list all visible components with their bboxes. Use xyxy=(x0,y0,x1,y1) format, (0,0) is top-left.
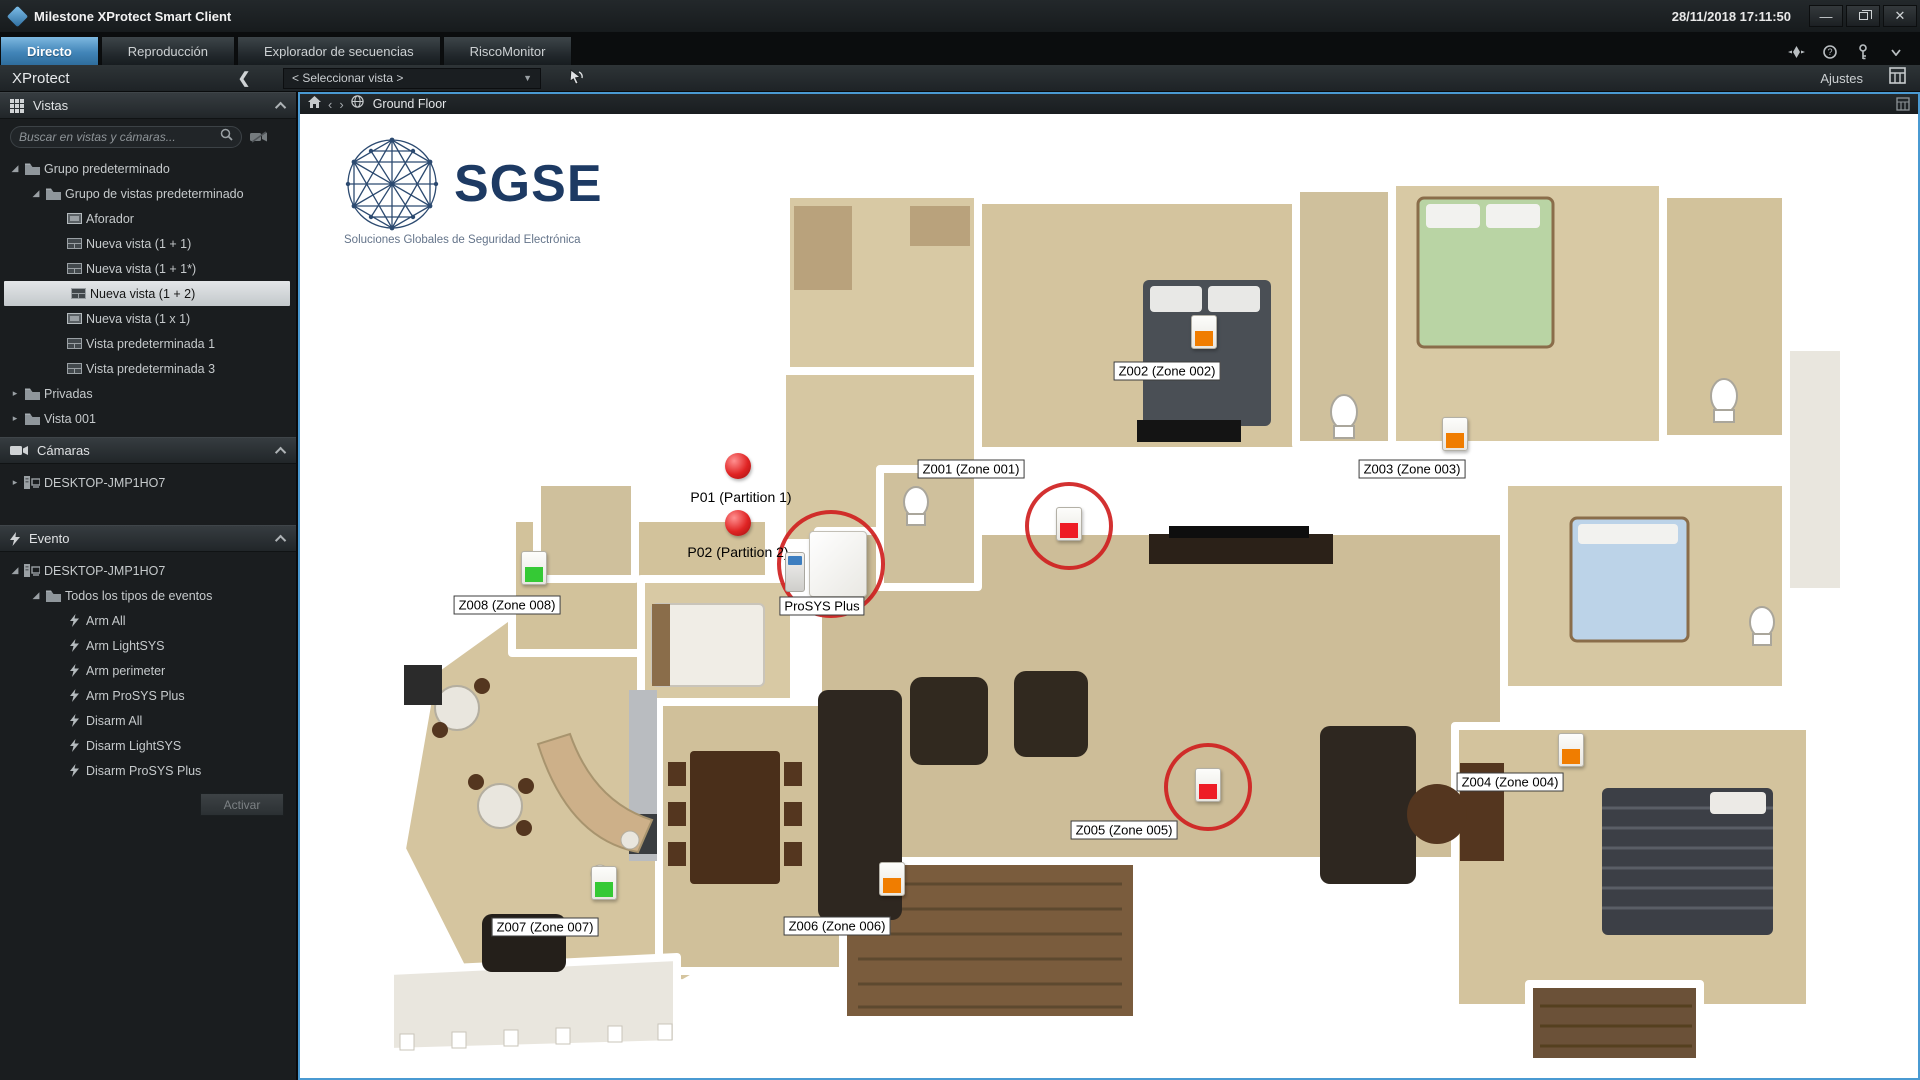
map-view-panel[interactable]: ‹ › Ground Floor xyxy=(298,92,1920,1080)
bolt-icon xyxy=(64,614,84,627)
tree-item-label: Privadas xyxy=(44,387,93,401)
tab-reproducción[interactable]: Reproducción xyxy=(101,36,235,65)
tree-item-label: Arm ProSYS Plus xyxy=(86,689,185,703)
key-icon[interactable] xyxy=(1854,45,1871,59)
tree-item-aforador[interactable]: Aforador xyxy=(0,206,296,231)
panel-title-camaras: Cámaras xyxy=(37,443,90,458)
sgse-sphere-icon xyxy=(344,136,440,232)
panel-header-evento[interactable]: Evento xyxy=(0,525,296,552)
collapse-panel-icon[interactable] xyxy=(275,534,286,545)
camaras-tree: ▸DESKTOP-JMP1HO7 xyxy=(0,464,296,495)
tree-item-privadas[interactable]: ▸Privadas xyxy=(0,381,296,406)
zone-label-z005: Z005 (Zone 005) xyxy=(1071,821,1178,840)
zone-sensor-z002[interactable] xyxy=(1191,315,1217,349)
app-title: Milestone XProtect Smart Client xyxy=(34,9,231,24)
milestone-logo-icon xyxy=(7,5,28,26)
settings-label[interactable]: Ajustes xyxy=(1820,71,1863,86)
prosys-keypad-device[interactable] xyxy=(785,552,805,592)
zone-label-z003: Z003 (Zone 003) xyxy=(1359,460,1466,479)
view-selector-dropdown[interactable]: < Seleccionar vista > ▼ xyxy=(283,68,541,89)
tree-item-nueva-vista-1-1-[interactable]: Nueva vista (1 + 1*) xyxy=(0,256,296,281)
tree-item-label: Disarm All xyxy=(86,714,142,728)
tree-item-arm-lightsys[interactable]: Arm LightSYS xyxy=(0,633,296,658)
view-icon xyxy=(64,363,84,374)
partition-label-p01: P01 (Partition 1) xyxy=(690,489,791,505)
title-bar: Milestone XProtect Smart Client 28/11/20… xyxy=(0,0,1920,32)
sgse-logo: SGSE Soluciones Globales de Seguridad El… xyxy=(344,136,644,246)
event-bolt-icon xyxy=(10,532,20,546)
setup-cursor-icon[interactable] xyxy=(567,69,585,87)
bolt-icon xyxy=(64,639,84,652)
map-title: Ground Floor xyxy=(373,97,447,111)
tree-item-label: Arm perimeter xyxy=(86,664,165,678)
tree-item-desktop-jmp1ho7[interactable]: ◢DESKTOP-JMP1HO7 xyxy=(0,558,296,583)
tree-item-label: Disarm ProSYS Plus xyxy=(86,764,201,778)
tree-item-label: Grupo de vistas predeterminado xyxy=(65,187,244,201)
sidebar: Vistas ◢Grupo predeterminado◢Grupo de vi… xyxy=(0,92,298,1080)
bolt-icon xyxy=(64,664,84,677)
panel-header-vistas[interactable]: Vistas xyxy=(0,92,296,119)
view-icon xyxy=(64,338,84,349)
tree-item-vista-predeterminada-1[interactable]: Vista predeterminada 1 xyxy=(0,331,296,356)
panel-title-evento: Evento xyxy=(29,531,69,546)
bolt-icon xyxy=(64,764,84,777)
tree-item-label: Vista predeterminada 1 xyxy=(86,337,215,351)
partition-dot-p02[interactable] xyxy=(725,510,751,536)
expanded-arrow-icon[interactable]: ◢ xyxy=(29,590,43,601)
tree-item-label: Arm LightSYS xyxy=(86,639,165,653)
view-icon xyxy=(68,288,88,299)
tab-directo[interactable]: Directo xyxy=(0,36,99,65)
tree-item-label: Nueva vista (1 + 1*) xyxy=(86,262,196,276)
camera-icon xyxy=(10,445,28,456)
partition-label-p02: P02 (Partition 2) xyxy=(687,544,788,560)
server-icon xyxy=(22,564,42,577)
zone-label-z002: Z002 (Zone 002) xyxy=(1114,362,1221,381)
zone-label-z006: Z006 (Zone 006) xyxy=(784,917,891,936)
tree-item-vista-predeterminada-3[interactable]: Vista predeterminada 3 xyxy=(0,356,296,381)
prosys-panel-device[interactable] xyxy=(809,531,867,597)
close-button[interactable]: ✕ xyxy=(1883,5,1917,27)
restore-button[interactable] xyxy=(1846,5,1880,27)
zone-label-z001: Z001 (Zone 001) xyxy=(918,460,1025,479)
map-header-bar: ‹ › Ground Floor xyxy=(300,94,1918,114)
tree-item-label: Vista 001 xyxy=(44,412,96,426)
view1-icon xyxy=(64,213,84,224)
search-box[interactable] xyxy=(10,126,242,148)
tree-item-nueva-vista-1-x-1-[interactable]: Nueva vista (1 x 1) xyxy=(0,306,296,331)
tree-item-grupo-predeterminado[interactable]: ◢Grupo predeterminado xyxy=(0,156,296,181)
map-toolbar-toggle-icon[interactable] xyxy=(1896,97,1910,111)
collapsed-arrow-icon[interactable]: ▸ xyxy=(8,413,22,424)
panel-title-vistas: Vistas xyxy=(33,98,68,113)
tree-item-label: Aforador xyxy=(86,212,134,226)
tree-item-desktop-jmp1ho7[interactable]: ▸DESKTOP-JMP1HO7 xyxy=(0,470,296,495)
partition-dot-p01[interactable] xyxy=(725,453,751,479)
panel-header-camaras[interactable]: Cámaras xyxy=(0,437,296,464)
view1-icon xyxy=(64,313,84,324)
clock: 28/11/2018 17:11:50 xyxy=(1672,9,1791,24)
view-icon xyxy=(64,238,84,249)
tree-item-label: Nueva vista (1 x 1) xyxy=(86,312,190,326)
evento-tree: ◢DESKTOP-JMP1HO7◢Todos los tipos de even… xyxy=(0,552,296,783)
minimize-button[interactable]: — xyxy=(1809,5,1843,27)
search-input[interactable] xyxy=(19,130,220,144)
bolt-icon xyxy=(64,714,84,727)
zone-label-z008: Z008 (Zone 008) xyxy=(454,596,561,615)
collapsed-arrow-icon[interactable]: ▸ xyxy=(8,388,22,399)
tree-item-disarm-lightsys[interactable]: Disarm LightSYS xyxy=(0,733,296,758)
zone-sensor-z004[interactable] xyxy=(1558,733,1584,767)
status-icon[interactable] xyxy=(1788,45,1805,59)
folder-icon xyxy=(22,388,42,400)
server-icon xyxy=(22,476,42,489)
tab-explorador-de-secuencias[interactable]: Explorador de secuencias xyxy=(237,36,441,65)
tree-item-grupo-de-vistas-predeterminado[interactable]: ◢Grupo de vistas predeterminado xyxy=(0,181,296,206)
collapsed-arrow-icon[interactable]: ▸ xyxy=(8,477,22,488)
zone-sensor-z003[interactable] xyxy=(1442,417,1468,451)
tree-item-label: Grupo predeterminado xyxy=(44,162,170,176)
tree-item-label: Nueva vista (1 + 1) xyxy=(86,237,191,251)
chevron-down-icon[interactable] xyxy=(1887,45,1904,59)
view-icon xyxy=(64,263,84,274)
tree-item-label: Disarm LightSYS xyxy=(86,739,181,753)
zone-sensor-z001[interactable] xyxy=(1056,507,1082,541)
folder-icon xyxy=(43,590,63,602)
view-selector-value: < Seleccionar vista > xyxy=(292,71,403,85)
zone-sensor-z006[interactable] xyxy=(879,862,905,896)
zone-sensor-z008[interactable] xyxy=(521,551,547,585)
tree-item-label: Arm All xyxy=(86,614,126,628)
tree-item-disarm-prosys-plus[interactable]: Disarm ProSYS Plus xyxy=(0,758,296,783)
views-grid-icon xyxy=(10,99,24,113)
expanded-arrow-icon[interactable]: ◢ xyxy=(8,565,22,576)
tab-bar: DirectoReproducciónExplorador de secuenc… xyxy=(0,32,1920,65)
map-globe-icon xyxy=(351,95,364,113)
tab-riscomonitor[interactable]: RiscoMonitor xyxy=(443,36,573,65)
svg-text:?: ? xyxy=(1827,47,1832,57)
tree-item-label: Vista predeterminada 3 xyxy=(86,362,215,376)
toolbar: XProtect ❮ < Seleccionar vista > ▼ Ajust… xyxy=(0,65,1920,92)
vistas-tree: ◢Grupo predeterminado◢Grupo de vistas pr… xyxy=(0,156,296,431)
folder-icon xyxy=(22,163,42,175)
zone-sensor-z005[interactable] xyxy=(1195,768,1221,802)
activate-event-button[interactable]: Activar xyxy=(200,793,284,816)
xprotect-brand: XProtect xyxy=(12,70,227,87)
tree-item-label: DESKTOP-JMP1HO7 xyxy=(44,476,165,490)
tree-item-arm-all[interactable]: Arm All xyxy=(0,608,296,633)
tree-item-nueva-vista-1-2-[interactable]: Nueva vista (1 + 2) xyxy=(4,281,290,306)
dropdown-caret-icon: ▼ xyxy=(523,73,532,83)
search-icon xyxy=(220,128,233,146)
collapse-sidebar-button[interactable]: ❮ xyxy=(227,69,261,87)
tree-item-arm-prosys-plus[interactable]: Arm ProSYS Plus xyxy=(0,683,296,708)
collapse-panel-icon[interactable] xyxy=(275,101,286,112)
map-back-icon[interactable]: ‹ xyxy=(328,98,332,111)
tree-item-todos-los-tipos-de-eventos[interactable]: ◢Todos los tipos de eventos xyxy=(0,583,296,608)
tree-item-label: Todos los tipos de eventos xyxy=(65,589,212,603)
zone-label-z004: Z004 (Zone 004) xyxy=(1457,773,1564,792)
folder-icon xyxy=(43,188,63,200)
camera-filter-icon[interactable] xyxy=(250,131,268,143)
panel-label: ProSYS Plus xyxy=(779,597,864,616)
bolt-icon xyxy=(64,739,84,752)
tree-item-label: DESKTOP-JMP1HO7 xyxy=(44,564,165,578)
folder-icon xyxy=(22,413,42,425)
map-canvas[interactable]: SGSE Soluciones Globales de Seguridad El… xyxy=(300,114,1918,1078)
setup-grid-icon[interactable] xyxy=(1889,67,1906,89)
collapse-panel-icon[interactable] xyxy=(275,446,286,457)
bolt-icon xyxy=(64,689,84,702)
tree-item-disarm-all[interactable]: Disarm All xyxy=(0,708,296,733)
sgse-tagline: Soluciones Globales de Seguridad Electró… xyxy=(344,234,644,246)
help-icon[interactable]: ? xyxy=(1821,45,1838,59)
tree-item-label: Nueva vista (1 + 2) xyxy=(90,287,195,301)
expanded-arrow-icon[interactable]: ◢ xyxy=(8,163,22,174)
tree-item-vista-001[interactable]: ▸Vista 001 xyxy=(0,406,296,431)
home-icon[interactable] xyxy=(308,95,321,113)
tree-item-nueva-vista-1-1-[interactable]: Nueva vista (1 + 1) xyxy=(0,231,296,256)
expanded-arrow-icon[interactable]: ◢ xyxy=(29,188,43,199)
map-forward-icon[interactable]: › xyxy=(339,98,343,111)
zone-sensor-z007[interactable] xyxy=(591,866,617,900)
sgse-wordmark: SGSE xyxy=(454,154,603,214)
tree-item-arm-perimeter[interactable]: Arm perimeter xyxy=(0,658,296,683)
zone-label-z007: Z007 (Zone 007) xyxy=(492,918,599,937)
